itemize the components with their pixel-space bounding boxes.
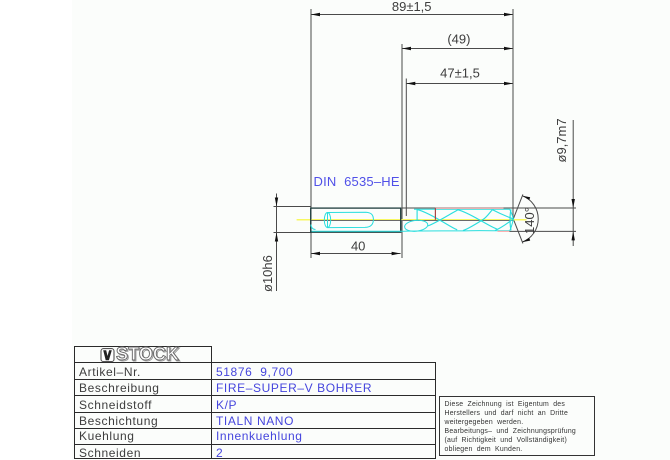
svg-text:STOCK: STOCK [116, 346, 179, 363]
